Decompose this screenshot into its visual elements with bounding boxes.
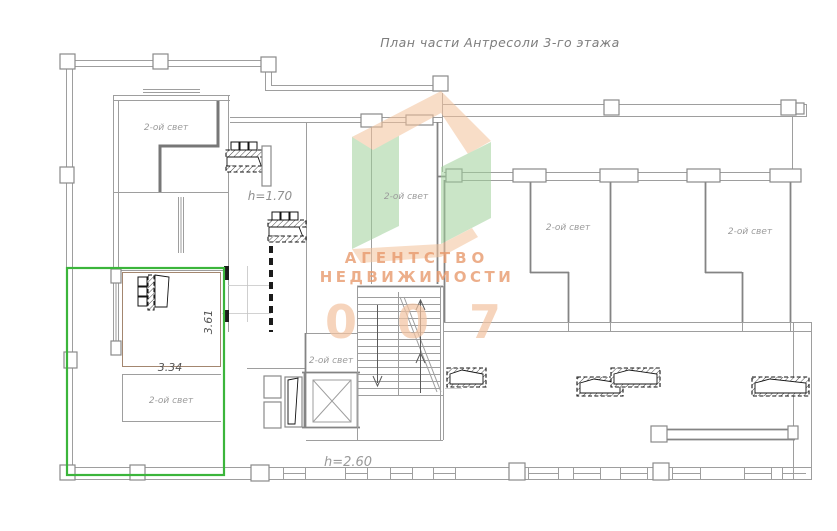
room-label-highlight: 2-ой свет xyxy=(149,396,194,406)
elevator-shaft xyxy=(264,376,351,428)
height-label-mezzanine: h=1.70 xyxy=(248,189,293,203)
hatch-symbol-c xyxy=(138,275,169,310)
watermark-realty-word: НЕДВИЖИМОСТИ xyxy=(320,268,515,286)
room-label-right-1: 2-ой свет xyxy=(546,223,591,233)
hatch-symbol-b xyxy=(268,212,306,242)
hatch-symbol-d xyxy=(447,368,486,387)
floor-plan-page: АГЕНТСТВО НЕДВИЖИМОСТИ 0 0 7 План части … xyxy=(0,0,837,531)
hatch-symbol-g xyxy=(752,377,809,396)
hatch-symbol-a xyxy=(226,142,271,186)
room-label-niche: 2-ой свет xyxy=(309,356,354,366)
room-label-top-left: 2-ой свет xyxy=(144,123,189,133)
watermark-agency-word: АГЕНТСТВО xyxy=(345,249,490,267)
plan-title: План части Антресоли 3-го этажа xyxy=(380,35,620,50)
room-label-void: 2-ой свет xyxy=(384,192,429,202)
agency-watermark-text: АГЕНТСТВО НЕДВИЖИМОСТИ 0 0 7 xyxy=(320,249,515,349)
floor-plan-canvas: АГЕНТСТВО НЕДВИЖИМОСТИ 0 0 7 План части … xyxy=(0,0,837,531)
watermark-number: 0 0 7 xyxy=(325,295,513,349)
height-label-lower: h=2.60 xyxy=(324,455,372,470)
dimension-depth: 3.61 xyxy=(202,310,215,335)
logo-house-right-face xyxy=(441,142,491,244)
hatch-symbol-f xyxy=(611,368,660,387)
room-label-right-2: 2-ой свет xyxy=(728,227,773,237)
dimension-width: 3.34 xyxy=(158,361,183,374)
